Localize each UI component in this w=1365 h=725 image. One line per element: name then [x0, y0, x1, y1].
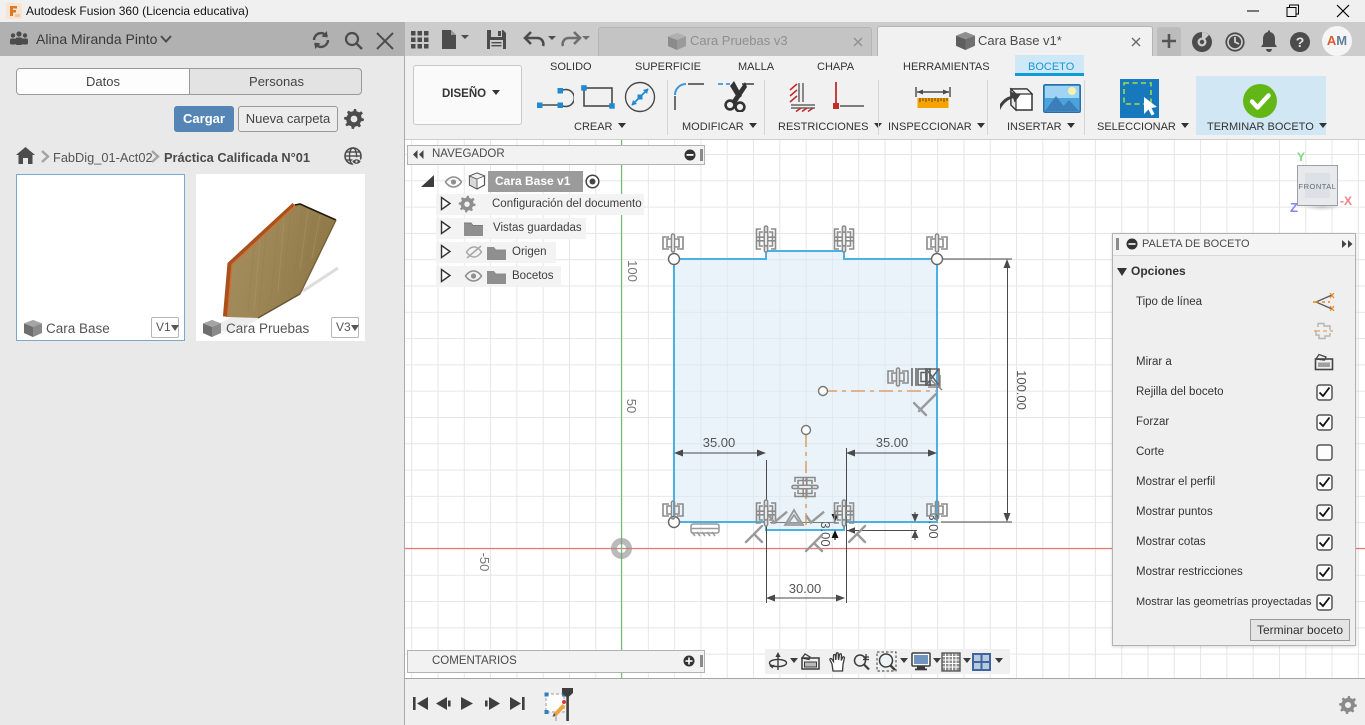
svg-text:100.00: 100.00	[1014, 370, 1029, 410]
svg-text:35.00: 35.00	[876, 435, 909, 450]
svg-text:-50: -50	[477, 553, 492, 572]
svg-text:50: 50	[624, 399, 639, 413]
svg-text:30.00: 30.00	[789, 581, 822, 596]
svg-text:100: 100	[625, 260, 640, 282]
svg-text:3.00: 3.00	[818, 521, 833, 546]
svg-text:?: ?	[1296, 34, 1305, 50]
svg-text:35.00: 35.00	[703, 435, 736, 450]
